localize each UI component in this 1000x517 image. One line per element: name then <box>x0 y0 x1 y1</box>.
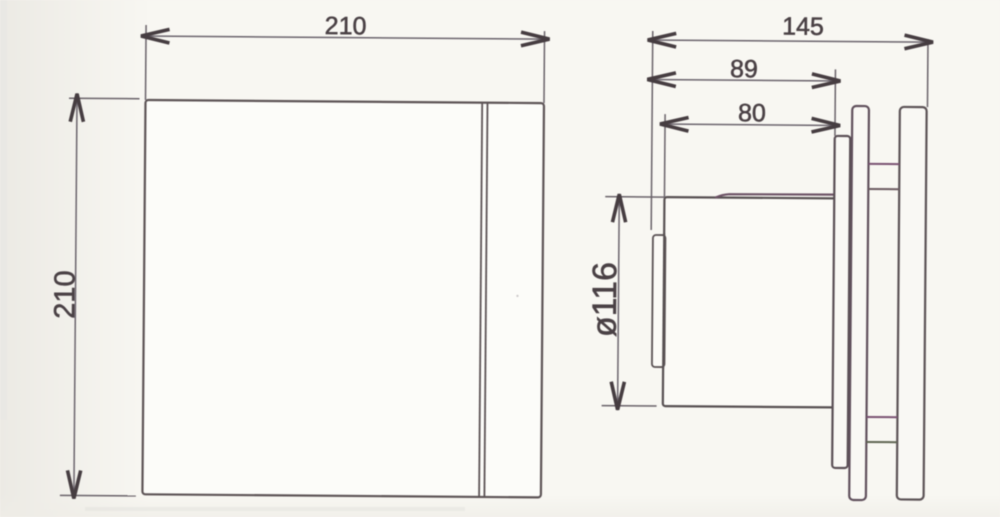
svg-text:210: 210 <box>325 12 367 40</box>
svg-text:ø116: ø116 <box>586 262 625 337</box>
svg-text:210: 210 <box>49 270 81 319</box>
svg-text:80: 80 <box>738 99 766 127</box>
svg-text:145: 145 <box>782 12 824 40</box>
svg-text:89: 89 <box>730 55 758 83</box>
